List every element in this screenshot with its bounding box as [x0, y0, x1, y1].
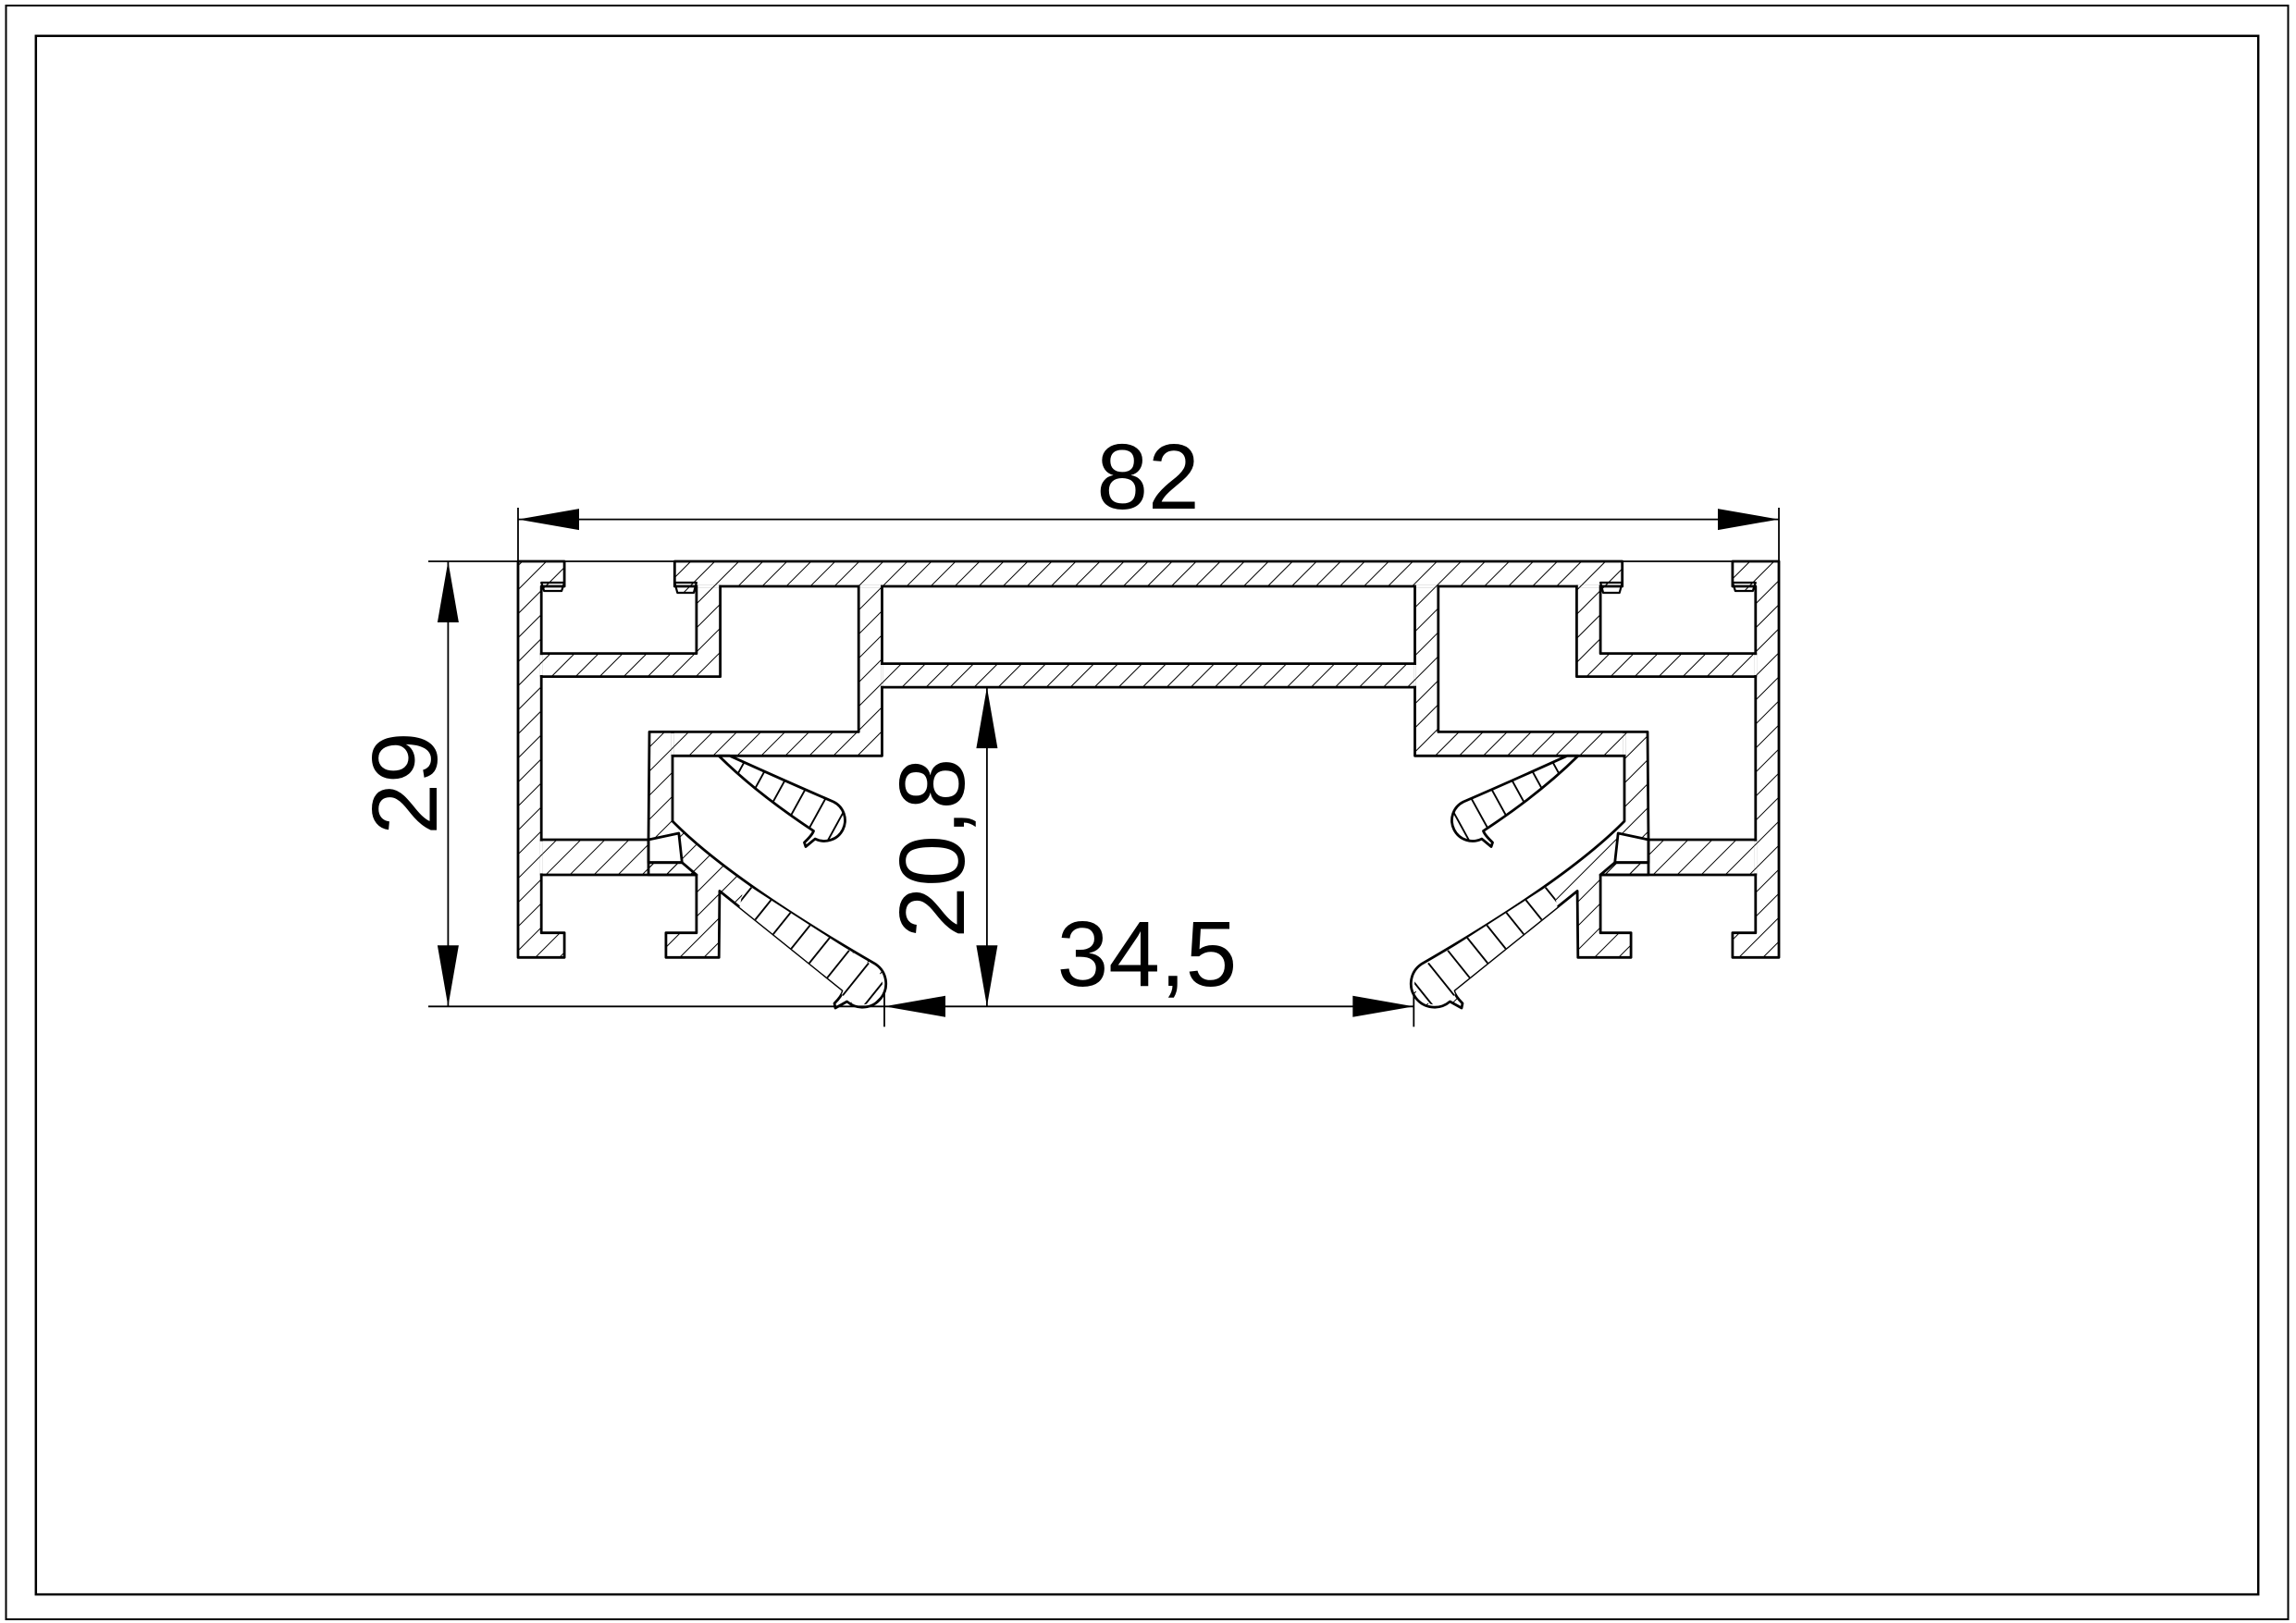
- svg-text:20,8: 20,8: [881, 758, 984, 939]
- svg-text:82: 82: [1096, 425, 1199, 529]
- svg-text:29: 29: [353, 732, 457, 834]
- svg-text:34,5: 34,5: [1057, 903, 1238, 1006]
